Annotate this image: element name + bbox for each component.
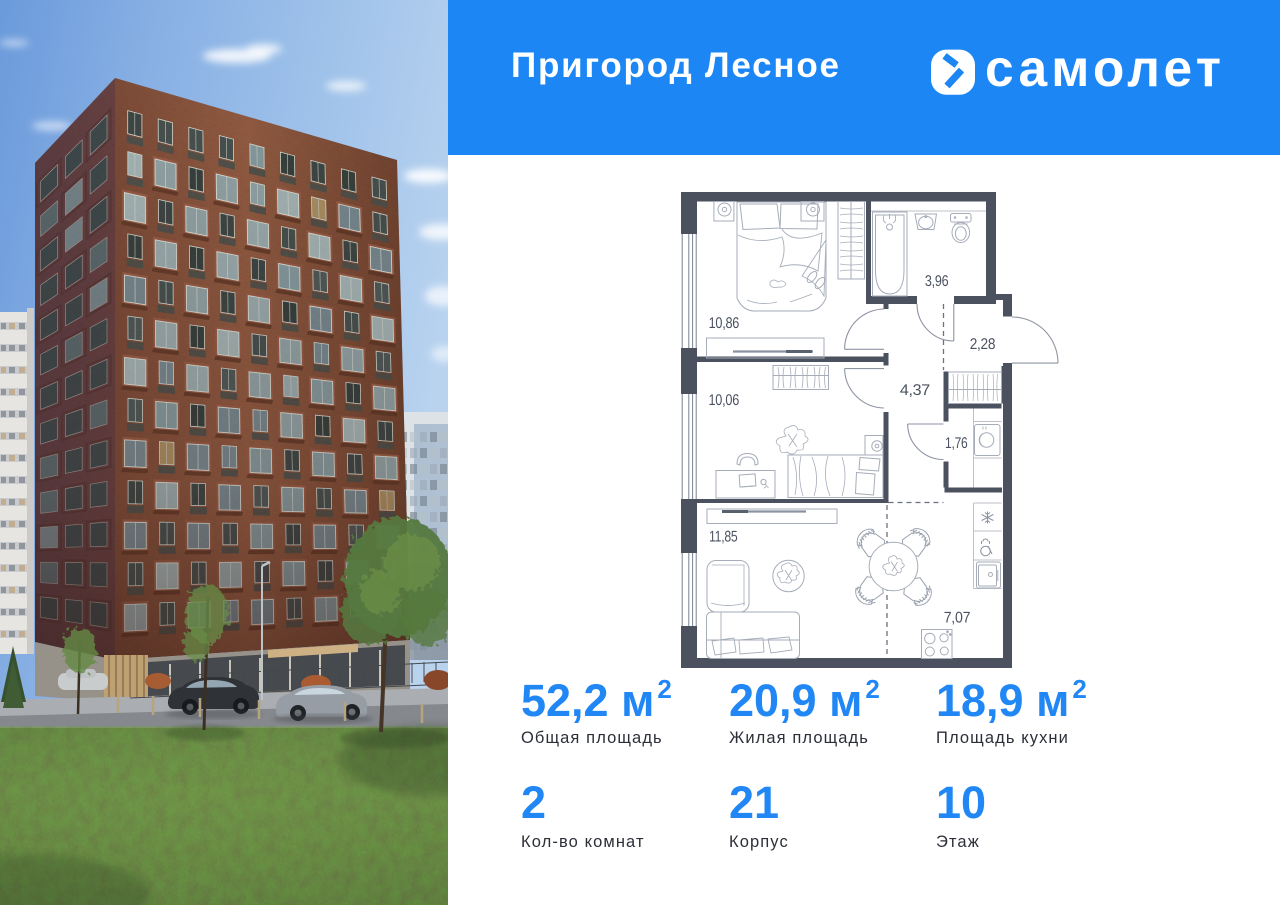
svg-text:7,07: 7,07 [944,610,971,627]
svg-text:10,06: 10,06 [709,392,740,409]
svg-text:10,86: 10,86 [709,315,740,332]
svg-text:1,76: 1,76 [945,435,968,452]
svg-text:2,28: 2,28 [970,336,996,353]
svg-text:11,85: 11,85 [709,529,738,546]
svg-text:4,37: 4,37 [900,382,930,399]
svg-text:3,96: 3,96 [925,273,949,290]
